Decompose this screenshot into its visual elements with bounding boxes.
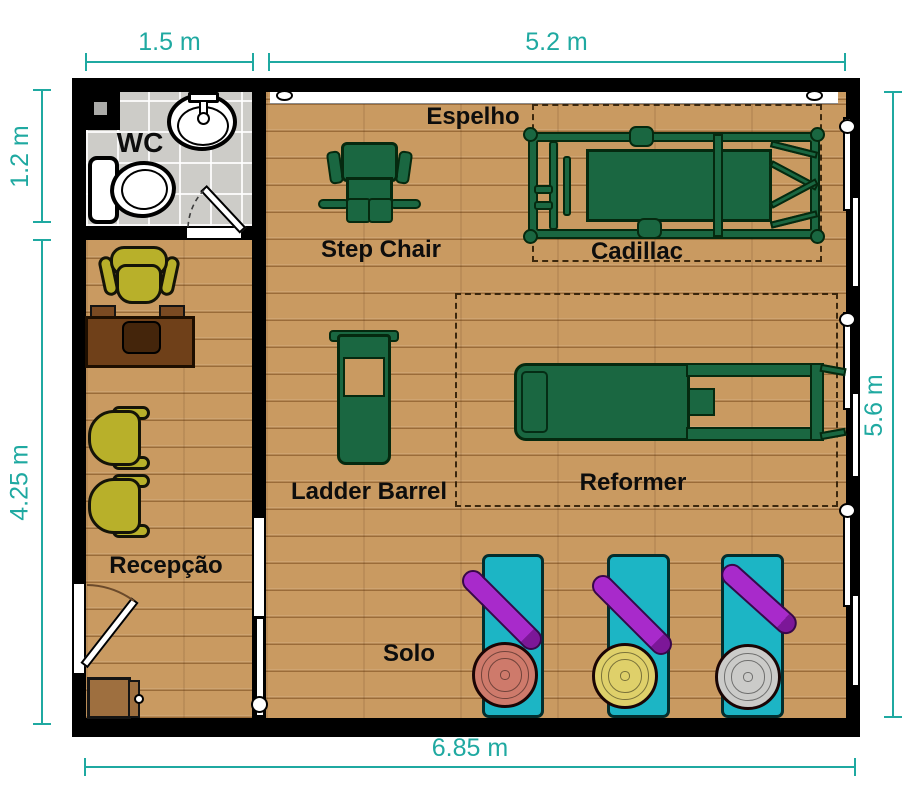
entry-cabinet	[87, 677, 131, 719]
dimension-tick	[844, 53, 846, 71]
window-pane	[851, 392, 860, 478]
cadillac-corner-post	[523, 127, 538, 142]
step-chair-back	[341, 142, 398, 182]
dimension-reception-height-line	[41, 240, 43, 725]
cadillac-clamp	[629, 126, 654, 147]
dimension-tick	[268, 53, 270, 71]
reformer-footbar	[810, 363, 824, 441]
ladder-barrel-opening	[343, 357, 385, 397]
sliding-door-handle	[251, 696, 268, 713]
window-crank	[839, 312, 856, 327]
dimension-wc-height-line	[41, 90, 43, 222]
dimension-total-width-line	[85, 766, 855, 768]
cadillac-pole	[713, 134, 723, 237]
wc-drain	[94, 102, 107, 115]
step-chair-label: Step Chair	[301, 236, 461, 264]
reformer-label: Reformer	[533, 469, 733, 497]
cadillac-corner-post	[523, 229, 538, 244]
dimension-wc-width-line	[86, 61, 253, 63]
dimension-wc-width-label: 1.5 m	[86, 28, 253, 57]
dimension-wc-height-label: 1.2 m	[0, 90, 40, 222]
window-crank	[839, 119, 856, 134]
reformer-rail	[686, 427, 824, 441]
cadillac-corner-post	[810, 229, 825, 244]
rotator-disc-yellow	[592, 643, 658, 709]
rotator-disc-gray	[715, 644, 781, 710]
cadillac-label: Cadillac	[557, 238, 717, 266]
faucet-tip	[197, 112, 210, 125]
cadillac-clamp	[637, 218, 662, 239]
laptop	[122, 321, 161, 354]
solo-label: Solo	[349, 640, 469, 668]
mirror-mount	[276, 90, 293, 101]
dimension-studio-height-line	[892, 92, 894, 718]
dimension-tick	[854, 758, 856, 776]
guest-chair-seat	[88, 410, 141, 466]
reformer-shoulder-block	[688, 388, 715, 416]
guest-chair-seat	[88, 478, 141, 534]
step-chair-cushion	[368, 198, 393, 223]
dimension-reception-height-label: 4.25 m	[0, 240, 40, 725]
floor-plan: 1.5 m 5.2 m 1.2 m 4.25 m 5.6 m 6.85 m Es…	[0, 0, 923, 805]
cadillac-corner-post	[810, 127, 825, 142]
sliding-door-panel	[252, 516, 266, 618]
dimension-tick	[252, 53, 254, 71]
ladder-barrel-label: Ladder Barrel	[269, 478, 469, 506]
dimension-studio-width-label: 5.2 m	[268, 28, 845, 57]
dimension-studio-width-line	[268, 61, 845, 63]
dimension-tick	[85, 53, 87, 71]
cadillac-trapeze-bar	[534, 185, 553, 194]
entry-cabinet-knob	[134, 694, 144, 704]
dimension-total-width-label: 6.85 m	[85, 734, 855, 763]
cadillac-trapeze-bar	[563, 156, 571, 216]
reception-label: Recepção	[86, 552, 246, 580]
mirror	[270, 92, 838, 104]
window-pane	[851, 594, 860, 687]
window-pane	[851, 196, 860, 288]
dimension-tick	[84, 758, 86, 776]
cadillac-mat	[586, 149, 772, 222]
dimension-studio-height-label: 5.6 m	[856, 92, 892, 718]
reformer-headrest	[521, 371, 548, 433]
cadillac-trapeze-bar	[534, 201, 553, 210]
wc-label: WC	[100, 127, 180, 159]
reformer-rail	[686, 363, 824, 377]
office-chair-seat	[116, 264, 162, 304]
step-chair-bar	[389, 199, 421, 209]
window-crank	[839, 503, 856, 518]
mirror-mount	[806, 90, 823, 101]
rotator-disc-red	[472, 642, 538, 708]
ladder-barrel-body	[337, 334, 391, 465]
